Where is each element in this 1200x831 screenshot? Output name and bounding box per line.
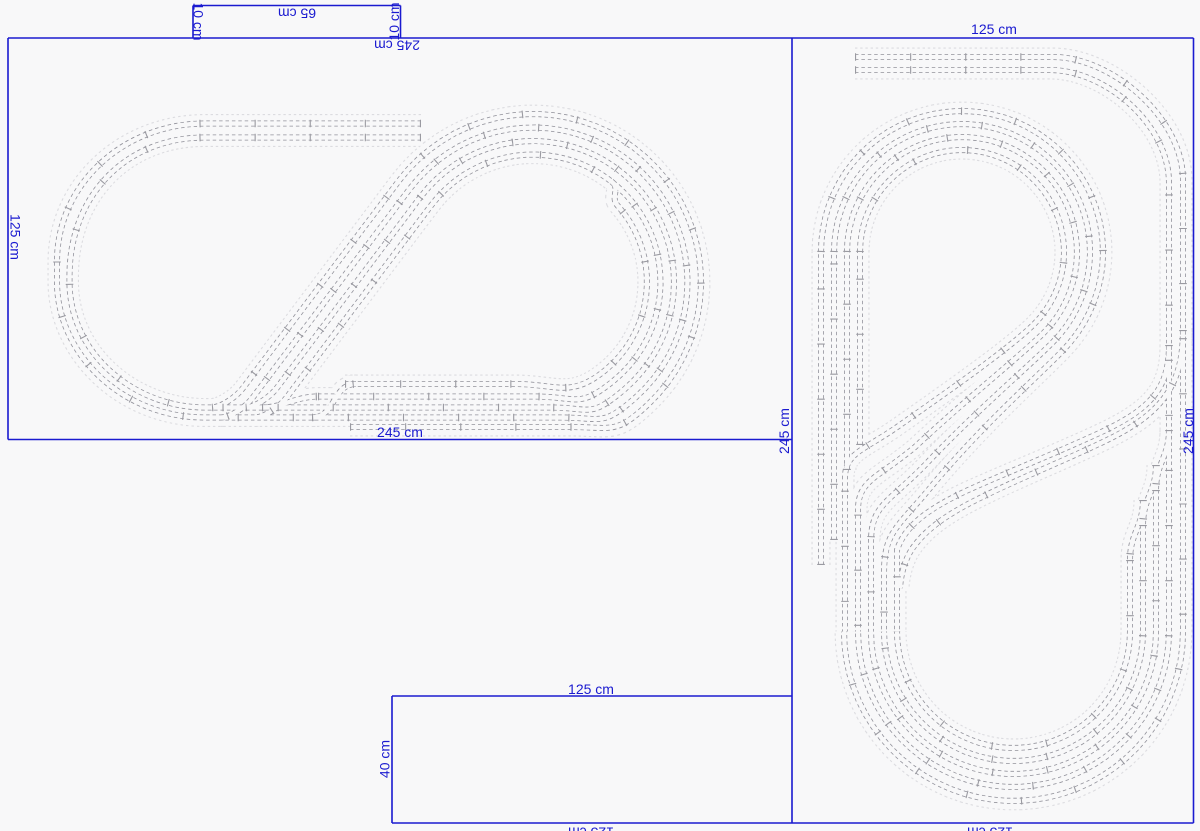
svg-text:245 cm: 245 cm (1180, 408, 1196, 454)
svg-text:125 cm: 125 cm (568, 825, 614, 831)
svg-text:125 cm: 125 cm (8, 214, 24, 260)
svg-text:245 cm: 245 cm (377, 424, 423, 440)
svg-text:245 cm: 245 cm (776, 408, 792, 454)
svg-text:65 cm: 65 cm (278, 6, 316, 22)
svg-text:10 cm: 10 cm (191, 2, 207, 40)
svg-text:125 cm: 125 cm (568, 681, 614, 697)
svg-text:40 cm: 40 cm (377, 740, 393, 778)
svg-text:125 cm: 125 cm (967, 825, 1013, 831)
svg-text:125 cm: 125 cm (971, 21, 1017, 37)
svg-text:10 cm: 10 cm (386, 2, 402, 40)
